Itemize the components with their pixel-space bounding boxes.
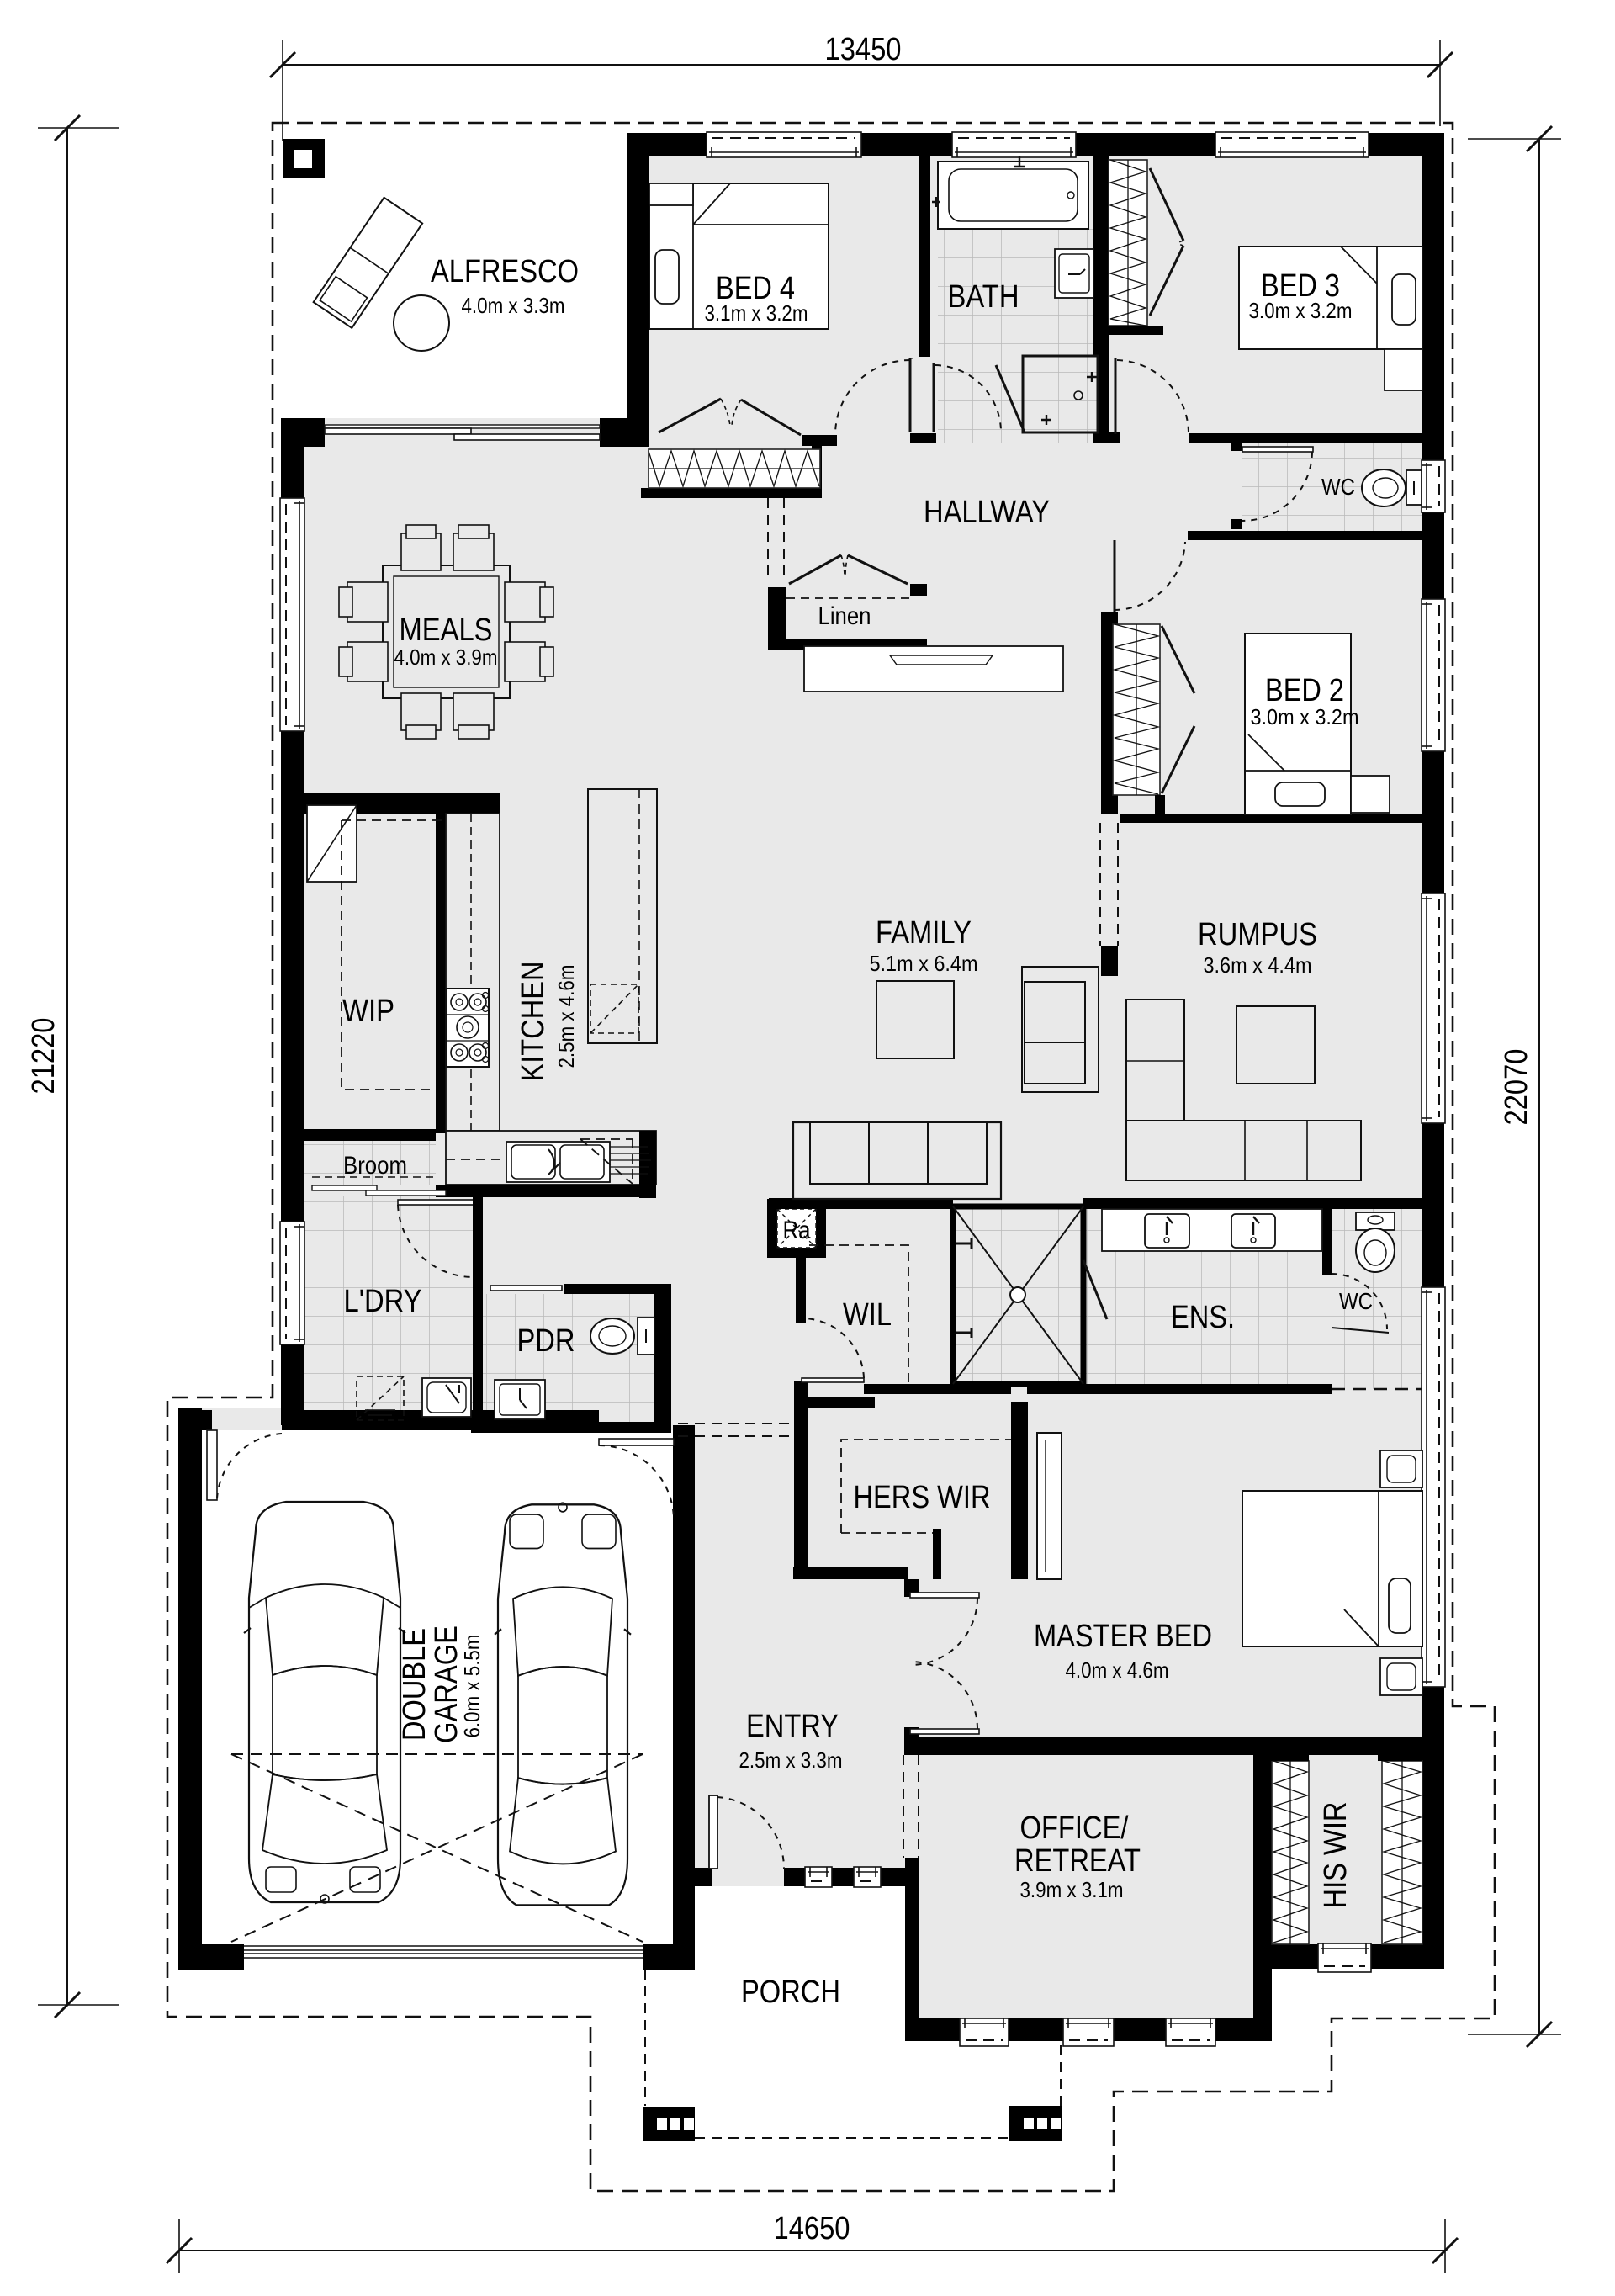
svg-text:WC: WC	[1321, 474, 1355, 500]
svg-text:HALLWAY: HALLWAY	[924, 495, 1050, 530]
svg-text:3.6m x 4.4m: 3.6m x 4.4m	[1204, 952, 1312, 978]
svg-text:PORCH: PORCH	[741, 1975, 840, 2010]
svg-text:4.0m x 3.9m: 4.0m x 3.9m	[394, 644, 498, 670]
svg-text:3.0m x 3.2m: 3.0m x 3.2m	[1251, 704, 1359, 729]
svg-text:3.1m x 3.2m: 3.1m x 3.2m	[705, 300, 808, 326]
svg-text:Broom: Broom	[343, 1152, 407, 1180]
svg-text:KITCHEN: KITCHEN	[516, 962, 551, 1082]
svg-text:MASTER BED: MASTER BED	[1034, 1619, 1212, 1654]
svg-text:21220: 21220	[26, 1018, 61, 1095]
svg-text:14650: 14650	[774, 2211, 850, 2246]
svg-text:WIL: WIL	[843, 1297, 892, 1333]
svg-text:HIS WIR: HIS WIR	[1318, 1802, 1353, 1909]
svg-text:3.9m x 3.1m: 3.9m x 3.1m	[1020, 1877, 1124, 1902]
svg-text:3.0m x 3.2m: 3.0m x 3.2m	[1249, 298, 1353, 323]
svg-text:HERS WIR: HERS WIR	[854, 1480, 991, 1515]
svg-text:22070: 22070	[1499, 1049, 1534, 1126]
svg-text:4.0m x 3.3m: 4.0m x 3.3m	[462, 293, 565, 318]
svg-text:Linen: Linen	[818, 602, 871, 630]
svg-text:2.5m x 3.3m: 2.5m x 3.3m	[739, 1747, 843, 1773]
svg-text:ENTRY: ENTRY	[746, 1709, 839, 1744]
svg-text:L'DRY: L'DRY	[344, 1284, 422, 1319]
svg-text:13450: 13450	[825, 32, 902, 67]
svg-text:Ra: Ra	[783, 1217, 811, 1244]
svg-text:BED 2: BED 2	[1265, 673, 1344, 708]
svg-text:5.1m x 6.4m: 5.1m x 6.4m	[870, 951, 978, 976]
svg-text:4.0m x 4.6m: 4.0m x 4.6m	[1066, 1657, 1169, 1683]
svg-text:OFFICE/: OFFICE/	[1020, 1811, 1129, 1846]
svg-text:ENS.: ENS.	[1171, 1300, 1235, 1335]
svg-text:2.5m x 4.6m: 2.5m x 4.6m	[553, 965, 579, 1068]
svg-text:BATH: BATH	[948, 279, 1019, 315]
svg-text:WC: WC	[1339, 1288, 1373, 1314]
svg-text:RUMPUS: RUMPUS	[1198, 917, 1317, 952]
svg-text:MEALS: MEALS	[400, 612, 493, 648]
svg-text:DOUBLE: DOUBLE	[397, 1628, 432, 1741]
svg-text:WIP: WIP	[342, 994, 394, 1029]
svg-text:RETREAT: RETREAT	[1014, 1843, 1141, 1879]
svg-text:FAMILY: FAMILY	[876, 915, 972, 951]
svg-text:6.0m x 5.5m: 6.0m x 5.5m	[459, 1635, 484, 1738]
svg-text:PDR: PDR	[517, 1323, 575, 1359]
svg-text:ALFRESCO: ALFRESCO	[431, 254, 579, 289]
